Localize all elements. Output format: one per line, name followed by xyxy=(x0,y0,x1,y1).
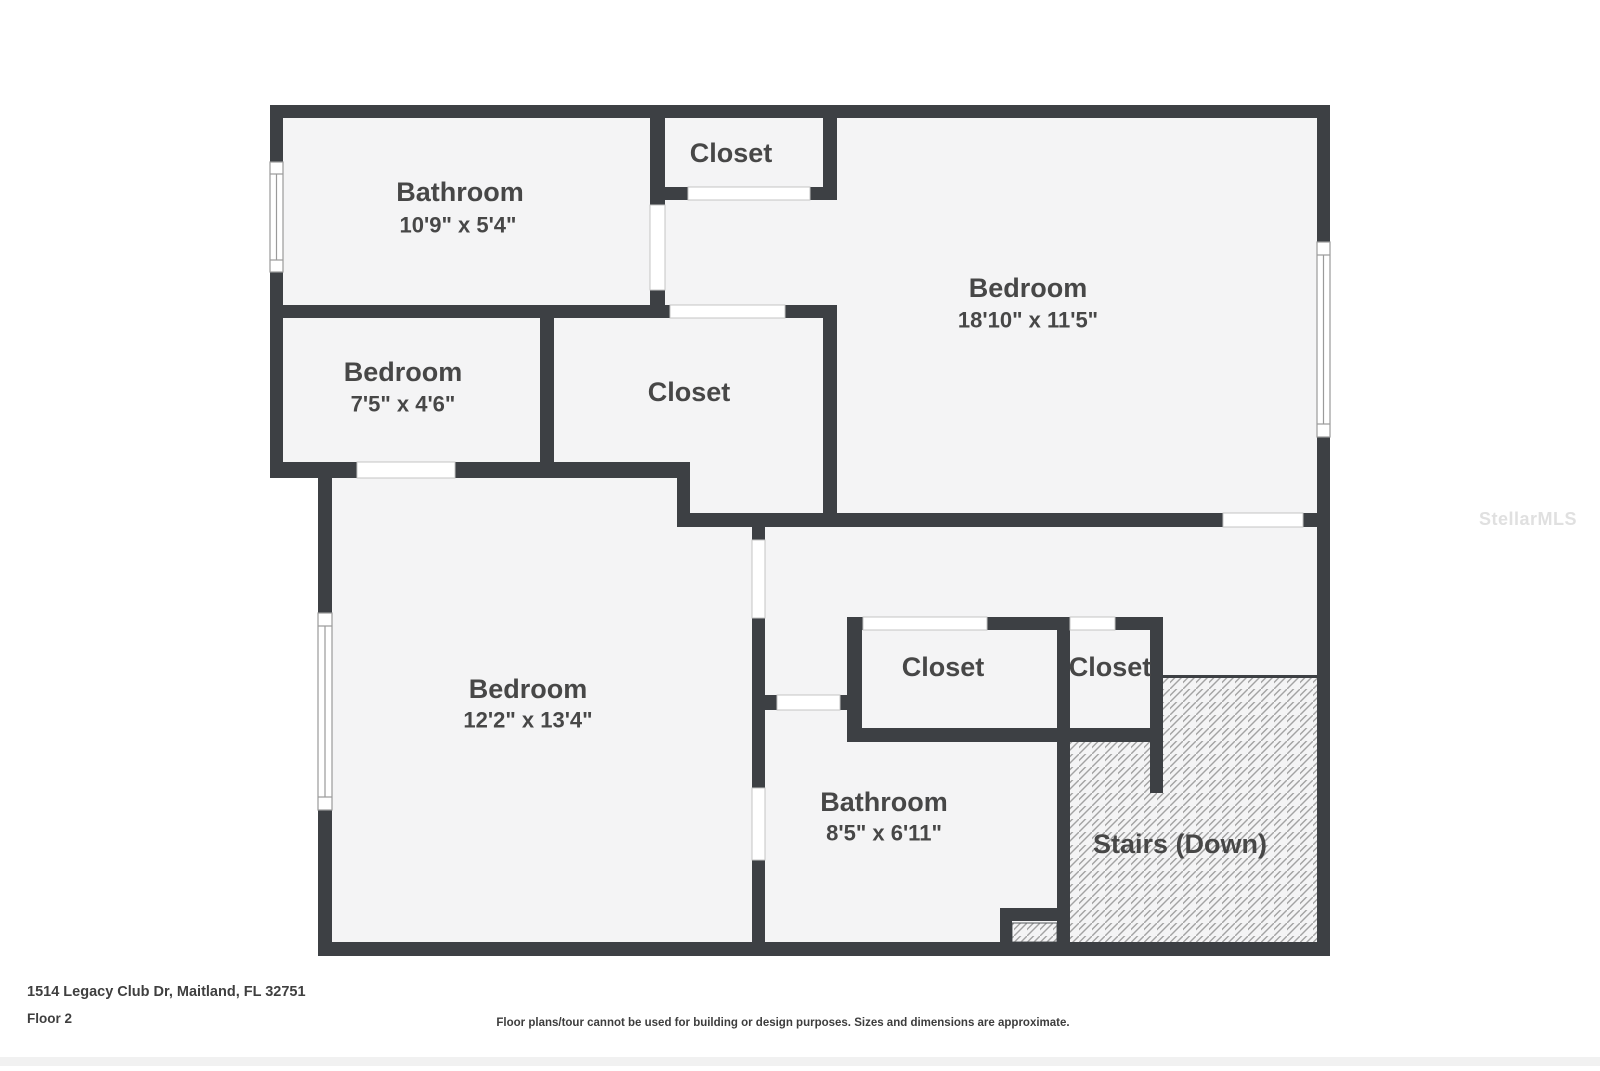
room-label-closet-left: Closet xyxy=(902,652,985,682)
wall-stairs-notch-left xyxy=(1000,921,1012,942)
wall-closet-middle-left xyxy=(540,305,554,478)
floor-plan-page: Bathroom 10'9" x 5'4" Closet Bedroom 18'… xyxy=(0,0,1600,1066)
room-label-bedroom-large: Bedroom xyxy=(969,273,1088,303)
wall-closets-bottom xyxy=(847,728,1163,742)
room-dims-bedroom-large: 18'10" x 11'5" xyxy=(958,308,1098,333)
door-bathroom-top xyxy=(650,205,665,290)
floor-bedroom-alcove xyxy=(665,200,837,305)
door-bedroom-large xyxy=(1223,513,1303,527)
wall-closet-middle-bottom xyxy=(540,462,690,478)
room-label-closet-middle: Closet xyxy=(648,377,731,407)
footer-disclaimer: Floor plans/tour cannot be used for buil… xyxy=(0,1017,1566,1029)
room-label-bedroom-lower: Bedroom xyxy=(469,674,588,704)
wall-right xyxy=(1317,105,1330,956)
footer-address: 1514 Legacy Club Dr, Maitland, FL 32751 xyxy=(27,984,306,1000)
wall-closet-left-west xyxy=(847,617,862,742)
floor-bathroom-top xyxy=(283,118,650,305)
room-dims-bathroom-top: 10'9" x 5'4" xyxy=(400,213,517,238)
room-label-bedroom-small: Bedroom xyxy=(344,357,463,387)
wall-closet-right-east xyxy=(1150,617,1163,793)
room-label-bathroom-top: Bathroom xyxy=(396,177,524,207)
door-closet-right xyxy=(1070,617,1115,630)
room-label-closet-top: Closet xyxy=(690,138,773,168)
room-label-bathroom-lower: Bathroom xyxy=(820,787,948,817)
wall-closet-top-right xyxy=(823,105,837,200)
door-closet-top xyxy=(688,187,810,200)
room-label-stairs: Stairs (Down) xyxy=(1093,829,1267,859)
door-closet-middle xyxy=(670,305,785,318)
room-label-closet-right: Closet xyxy=(1069,652,1152,682)
window-left-lower xyxy=(318,613,332,810)
watermark: StellarMLS xyxy=(1479,509,1577,530)
floor-hallway-lower xyxy=(765,615,847,695)
door-bathroom-lower xyxy=(777,695,840,710)
room-dims-bathroom-lower: 8'5" x 6'11" xyxy=(826,821,942,846)
wall-top xyxy=(270,105,1330,118)
floor-bedroom-small xyxy=(283,318,540,462)
door-bedrooms-small-lower xyxy=(357,462,455,478)
door-bedroom-lower-hall xyxy=(752,540,765,618)
room-dims-bedroom-lower: 12'2" x 13'4" xyxy=(463,708,592,733)
door-closet-left xyxy=(863,617,987,630)
wall-closet-middle-right xyxy=(823,305,837,527)
wall-stairs-notch-top xyxy=(1000,908,1070,921)
stairs-hatch-top-edge xyxy=(1163,675,1317,678)
window-right xyxy=(1317,242,1330,437)
bottom-bar xyxy=(0,1057,1600,1066)
wall-left-upper xyxy=(270,105,283,478)
floor-plan: Bathroom 10'9" x 5'4" Closet Bedroom 18'… xyxy=(0,0,1600,1066)
room-dims-bedroom-small: 7'5" x 4'6" xyxy=(351,392,456,417)
wall-bottom xyxy=(318,942,1330,956)
stairs-landing-hatch xyxy=(1012,923,1057,942)
door-bedroom-lower-bath xyxy=(752,788,765,860)
window-left-upper xyxy=(270,162,283,272)
